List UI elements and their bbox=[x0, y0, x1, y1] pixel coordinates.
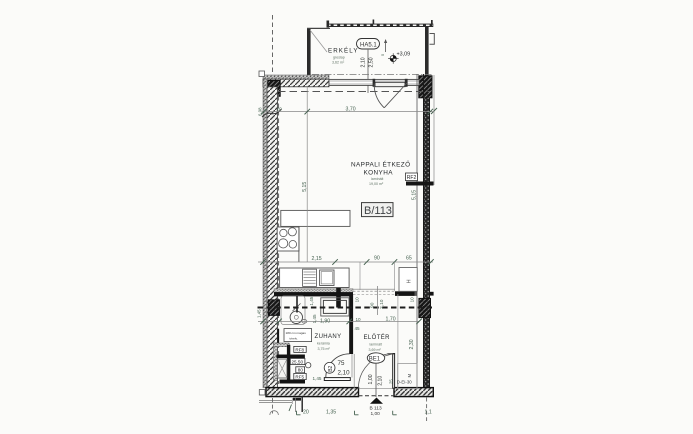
svg-text:KONYHA: KONYHA bbox=[364, 169, 394, 176]
svg-text:20: 20 bbox=[303, 410, 309, 416]
svg-text:1,45: 1,45 bbox=[309, 296, 314, 305]
svg-text:10: 10 bbox=[356, 317, 362, 322]
svg-text:BE1: BE1 bbox=[369, 356, 381, 362]
svg-text:2,10: 2,10 bbox=[361, 57, 367, 67]
svg-text:2,50: 2,50 bbox=[369, 57, 375, 67]
svg-text:laminált: laminált bbox=[370, 342, 382, 346]
svg-text:B2: B2 bbox=[328, 365, 334, 371]
svg-text:M: M bbox=[407, 374, 412, 378]
svg-text:1,1: 1,1 bbox=[425, 410, 432, 416]
svg-text:1,00: 1,00 bbox=[368, 374, 374, 384]
svg-text:6,98: 6,98 bbox=[258, 107, 263, 116]
svg-text:10: 10 bbox=[410, 297, 415, 303]
svg-text:19,00 m²: 19,00 m² bbox=[369, 182, 384, 186]
svg-text:kerámia: kerámia bbox=[317, 342, 330, 346]
svg-text:3,70: 3,70 bbox=[346, 107, 356, 113]
svg-text:20: 20 bbox=[277, 106, 283, 112]
svg-text:H: H bbox=[406, 279, 412, 283]
svg-text:65: 65 bbox=[406, 255, 412, 261]
svg-text:80: 80 bbox=[298, 368, 304, 373]
svg-text:3,75 m²: 3,75 m² bbox=[318, 347, 331, 351]
svg-text:2,30: 2,30 bbox=[409, 339, 415, 349]
svg-text:25,50: 25,50 bbox=[292, 359, 304, 364]
svg-text:1,70: 1,70 bbox=[386, 316, 396, 322]
svg-text:1,90: 1,90 bbox=[320, 319, 330, 325]
svg-text:2,10: 2,10 bbox=[379, 299, 385, 309]
svg-text:RF8: RF8 bbox=[295, 347, 304, 352]
svg-text:5,15: 5,15 bbox=[411, 190, 417, 200]
svg-text:ERKÉLY: ERKÉLY bbox=[328, 48, 359, 55]
svg-text:1,45: 1,45 bbox=[312, 314, 317, 323]
svg-text:B/113: B/113 bbox=[364, 205, 392, 217]
svg-text:45: 45 bbox=[355, 326, 361, 331]
svg-text:2,15: 2,15 bbox=[312, 256, 322, 262]
svg-text:ZUHANY: ZUHANY bbox=[315, 334, 342, 340]
svg-text:NAPPALI ÉTKEZŐ: NAPPALI ÉTKEZŐ bbox=[351, 160, 410, 169]
svg-text:25: 25 bbox=[388, 379, 393, 384]
svg-text:térelv.: térelv. bbox=[290, 337, 298, 341]
svg-text:1,45: 1,45 bbox=[313, 376, 322, 381]
svg-text:1,35: 1,35 bbox=[326, 410, 336, 416]
svg-text:3,62 m²: 3,62 m² bbox=[332, 60, 345, 64]
svg-text:ELŐTÉR: ELŐTÉR bbox=[364, 334, 391, 341]
svg-text:RF5: RF5 bbox=[295, 375, 304, 380]
svg-text:HA5.1: HA5.1 bbox=[360, 42, 377, 48]
svg-text:+3,09: +3,09 bbox=[397, 52, 411, 58]
svg-text:90: 90 bbox=[370, 302, 376, 308]
svg-text:RF2: RF2 bbox=[407, 175, 417, 181]
svg-text:laminált: laminált bbox=[371, 177, 383, 181]
svg-text:3,69 m²: 3,69 m² bbox=[369, 348, 382, 352]
svg-text:90: 90 bbox=[374, 255, 380, 261]
svg-text:2,10: 2,10 bbox=[338, 370, 351, 377]
svg-text:greslap: greslap bbox=[333, 56, 345, 60]
svg-text:D-EI-30: D-EI-30 bbox=[397, 380, 412, 385]
svg-text:2,10: 2,10 bbox=[378, 376, 384, 386]
svg-text:180 cm magas: 180 cm magas bbox=[286, 331, 307, 335]
svg-text:10: 10 bbox=[354, 297, 359, 303]
svg-text:1,45: 1,45 bbox=[257, 309, 262, 318]
svg-text:75: 75 bbox=[338, 360, 345, 367]
svg-text:5,15: 5,15 bbox=[302, 182, 308, 192]
